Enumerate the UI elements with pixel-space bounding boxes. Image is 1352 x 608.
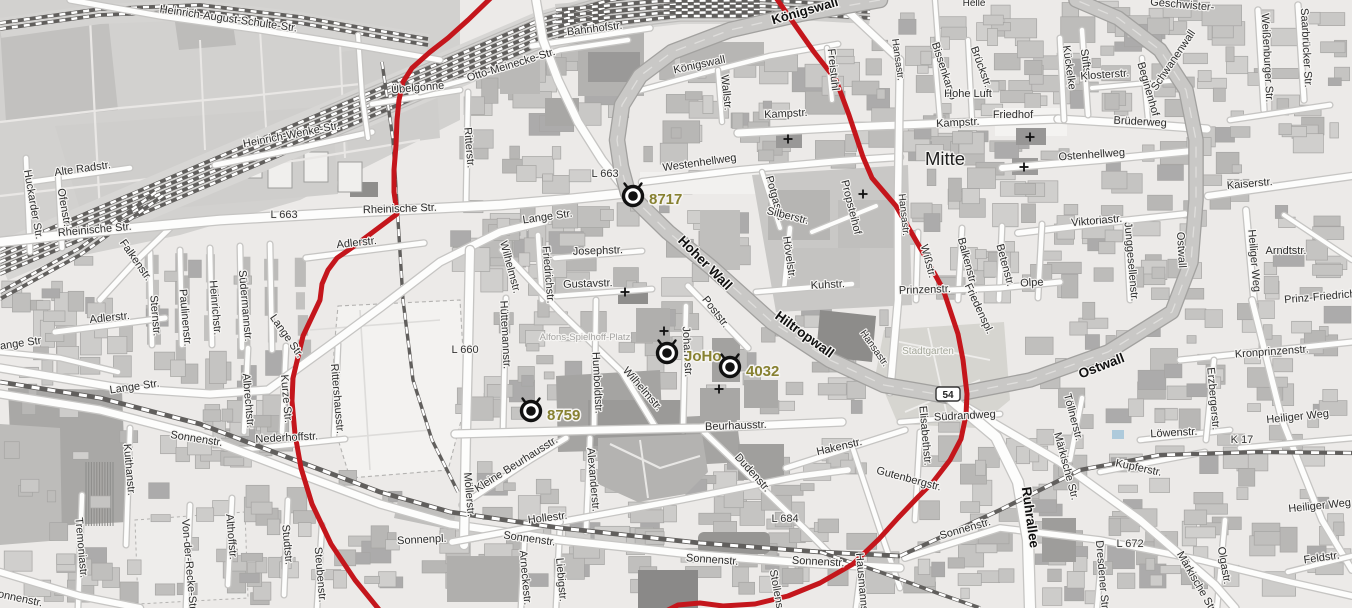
svg-text:Olpe: Olpe (1020, 276, 1044, 289)
svg-text:Josephstr.: Josephstr. (573, 244, 624, 258)
svg-text:K 17: K 17 (1231, 434, 1254, 446)
svg-text:8759: 8759 (547, 407, 580, 424)
svg-text:Beurhausstr.: Beurhausstr. (705, 419, 767, 433)
svg-text:Gustavstr.: Gustavstr. (563, 277, 613, 291)
svg-text:L 663: L 663 (270, 209, 297, 221)
svg-text:JoHo: JoHo (684, 348, 722, 365)
svg-text:8717: 8717 (649, 191, 682, 208)
svg-text:L 684: L 684 (771, 513, 798, 525)
svg-text:Mitte: Mitte (925, 148, 965, 169)
svg-text:Hohe Luft: Hohe Luft (944, 88, 992, 100)
svg-text:Kampstr.: Kampstr. (936, 116, 980, 130)
svg-text:54: 54 (942, 390, 954, 401)
svg-text:Stadtgarten: Stadtgarten (902, 346, 954, 357)
svg-text:4032: 4032 (746, 363, 779, 380)
svg-text:Alfons-Spielhoff-Platz: Alfons-Spielhoff-Platz (540, 332, 631, 343)
svg-text:Löwenstr.: Löwenstr. (1150, 426, 1198, 440)
svg-text:Ostwall: Ostwall (1174, 232, 1188, 269)
svg-text:Arndtstr.: Arndtstr. (1266, 245, 1307, 257)
svg-text:Kampstr.: Kampstr. (764, 107, 808, 121)
svg-text:Helle: Helle (963, 0, 986, 9)
svg-text:L 663: L 663 (591, 168, 618, 180)
svg-text:Prinzenstr.: Prinzenstr. (899, 283, 951, 297)
svg-text:L 660: L 660 (451, 344, 478, 356)
svg-text:Kuhstr.: Kuhstr. (810, 278, 845, 292)
svg-text:L 672: L 672 (1116, 538, 1143, 550)
svg-text:Friedhof: Friedhof (993, 109, 1034, 121)
